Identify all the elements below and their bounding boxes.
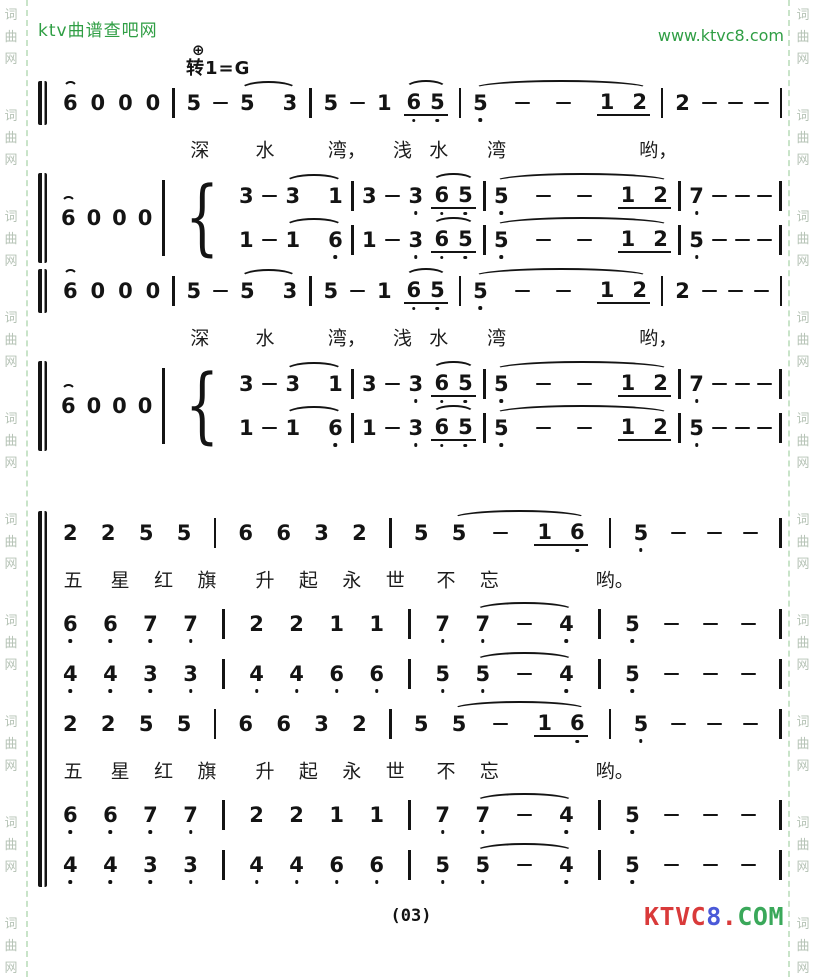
system-lead: 6000{ <box>60 368 228 444</box>
note: 0 <box>117 91 134 116</box>
dash-note <box>515 102 530 105</box>
dash-note <box>702 102 717 105</box>
note: 0 <box>90 91 107 116</box>
note: 5 <box>186 91 203 116</box>
dash-note <box>517 623 532 626</box>
note: 1 <box>327 184 344 209</box>
slur: 6 <box>62 91 79 116</box>
note: 5 <box>624 612 641 637</box>
lyric-char: 湾 <box>487 324 506 351</box>
lyric-char: 水 <box>255 324 274 351</box>
slur: 53 <box>239 91 298 116</box>
watermark-char: 网 <box>794 356 812 369</box>
note: 7 <box>182 803 199 828</box>
barline <box>678 369 681 399</box>
note: 5 <box>138 712 155 737</box>
note: 1 <box>620 417 637 438</box>
barline <box>309 88 312 118</box>
note: 6 <box>368 662 385 687</box>
note: 5 <box>451 521 468 546</box>
dash-note <box>262 239 277 242</box>
dash-note <box>385 239 400 242</box>
score-page: 词曲网词曲网词曲网词曲网词曲网词曲网词曲网词曲网词曲网词曲网 词曲网词曲网词曲网… <box>0 0 814 977</box>
note: 6 <box>275 521 292 546</box>
note: 6 <box>368 853 385 878</box>
barline <box>661 88 664 118</box>
watermark-spacer <box>794 277 812 303</box>
barline <box>779 800 782 830</box>
notation-line: 600055351655122 <box>60 276 784 306</box>
bracketed-group: 2255663255165五星红旗升起永世不忘哟。667722117745443… <box>38 508 784 890</box>
watermark-char: 网 <box>794 53 812 66</box>
lyrics-track: 五星红旗升起永世不忘哟。 <box>60 749 784 790</box>
note: 3 <box>407 228 424 253</box>
dash-note <box>741 814 756 817</box>
note: 6 <box>328 662 345 687</box>
barline <box>351 181 354 211</box>
note: 6 <box>60 206 77 231</box>
dash-note <box>707 532 722 535</box>
note: 3 <box>238 184 255 209</box>
note: 4 <box>558 662 575 687</box>
dash-note <box>671 723 686 726</box>
page-footer: (03) KTVC8.COM <box>38 898 784 940</box>
right-dashed-border <box>788 0 790 977</box>
barline <box>661 276 664 306</box>
watermark-char: 曲 <box>794 435 812 448</box>
note: 1 <box>238 416 255 441</box>
watermark-char: 网 <box>2 457 20 470</box>
lyric-char: 永 <box>342 565 361 592</box>
note: 5 <box>239 91 256 116</box>
lyric-char: 世 <box>386 756 405 783</box>
barline <box>408 659 411 689</box>
slur: 512 <box>493 183 671 209</box>
watermark-char: 曲 <box>2 536 20 549</box>
barline <box>309 276 312 306</box>
dash-note <box>735 383 750 386</box>
note: 7 <box>688 372 705 397</box>
note: 5 <box>457 185 474 206</box>
watermark-char: 网 <box>2 255 20 268</box>
watermark-spacer <box>2 277 20 303</box>
watermark-spacer <box>794 580 812 606</box>
note: 1 <box>368 803 385 828</box>
dash-note <box>757 195 772 198</box>
watermark-char: 网 <box>794 154 812 167</box>
note: 1 <box>376 279 393 304</box>
notation-line: 2255663255165 <box>60 709 784 739</box>
dash-note <box>556 102 571 105</box>
watermark-spacer <box>2 176 20 202</box>
watermark-char: 网 <box>2 760 20 773</box>
music-line: 443344665545 <box>60 840 784 890</box>
note: 2 <box>652 373 669 394</box>
watermark-char: 曲 <box>2 233 20 246</box>
note: 5 <box>633 712 650 737</box>
note: 6 <box>62 803 79 828</box>
watermark-char: 网 <box>2 659 20 672</box>
lyric-char: 不 <box>436 565 455 592</box>
note: 4 <box>62 853 79 878</box>
note: 4 <box>558 803 575 828</box>
barline <box>408 800 411 830</box>
lyric-char: 忘 <box>480 565 499 592</box>
note: 3 <box>284 372 301 397</box>
note: 3 <box>407 416 424 441</box>
slur: 31 <box>284 184 343 209</box>
watermark-char: 词 <box>2 9 20 22</box>
note: 5 <box>457 229 474 250</box>
watermark-char: 词 <box>794 716 812 729</box>
note: 6 <box>62 279 79 304</box>
note: 0 <box>137 206 154 231</box>
watermark-char: 词 <box>794 817 812 830</box>
lyric-char: 忘 <box>480 756 499 783</box>
watermark-spacer <box>794 479 812 505</box>
barline <box>172 276 175 306</box>
note-pair: 65 <box>431 227 475 253</box>
slur: 74 <box>474 803 574 828</box>
note: 3 <box>361 184 378 209</box>
lyrics-track: 深水湾，浅水湾哟， <box>60 128 784 170</box>
dash-note <box>536 383 551 386</box>
logo-segment: 8 <box>706 902 722 931</box>
watermark-char: 曲 <box>2 435 20 448</box>
slur: 16 <box>284 228 343 253</box>
watermark-char: 词 <box>794 9 812 22</box>
note: 1 <box>328 803 345 828</box>
barline <box>779 709 782 739</box>
dash-note <box>703 623 718 626</box>
watermark-char: 曲 <box>2 940 20 953</box>
dash-note <box>741 623 756 626</box>
barline <box>222 609 225 639</box>
barline <box>779 225 782 255</box>
note: 6 <box>406 280 423 301</box>
note: 1 <box>328 612 345 637</box>
note: 5 <box>413 521 430 546</box>
system-bracket <box>38 173 47 263</box>
watermark-char: 词 <box>794 312 812 325</box>
note: 4 <box>288 662 305 687</box>
note-pair: 16 <box>534 520 587 546</box>
watermark-char: 词 <box>2 514 20 527</box>
note: 6 <box>102 612 119 637</box>
lyric-char: 五 <box>64 565 83 592</box>
note: 3 <box>284 184 301 209</box>
note: 5 <box>457 417 474 438</box>
note: 1 <box>599 92 616 113</box>
watermark-char: 词 <box>794 413 812 426</box>
logo-segment: . <box>722 902 738 931</box>
left-watermark-column: 词曲网词曲网词曲网词曲网词曲网词曲网词曲网词曲网词曲网词曲网 <box>2 0 20 977</box>
lyric-char: 不 <box>436 756 455 783</box>
watermark-spacer <box>794 378 812 404</box>
note-pair: 12 <box>597 90 650 116</box>
lyric-char: 浅 <box>393 324 412 351</box>
dash-note <box>517 864 532 867</box>
dash-note <box>703 673 718 676</box>
note: 1 <box>376 91 393 116</box>
voice-brace: { <box>185 369 219 443</box>
note-pair: 16 <box>534 711 587 737</box>
watermark-char: 网 <box>794 457 812 470</box>
lyric-char: 哟， <box>639 324 677 351</box>
dash-note <box>664 673 679 676</box>
note: 5 <box>474 662 491 687</box>
note: 2 <box>62 712 79 737</box>
dash-note <box>493 532 508 535</box>
dash-note <box>712 383 727 386</box>
barline <box>483 225 486 255</box>
dash-note <box>517 814 532 817</box>
note: 2 <box>674 279 691 304</box>
note: 0 <box>86 206 103 231</box>
note: 5 <box>239 279 256 304</box>
note-pair: 65 <box>404 90 448 116</box>
system-gutter <box>38 78 60 128</box>
dual-voice-system: 6000{3313365512711613655125 <box>38 170 784 266</box>
slur: 516 <box>451 711 588 737</box>
note: 0 <box>111 394 128 419</box>
note: 7 <box>474 612 491 637</box>
group-column: 2255663255165五星红旗升起永世不忘哟。667722117745443… <box>60 508 784 890</box>
watermark-spacer <box>794 883 812 909</box>
dash-note <box>712 239 727 242</box>
upper-voice-line: 33133655127 <box>236 369 784 399</box>
slur: 512 <box>493 371 671 397</box>
watermark-spacer <box>794 782 812 808</box>
dash-note <box>262 427 277 430</box>
watermark-char: 词 <box>794 211 812 224</box>
slur: 65 <box>431 371 475 397</box>
watermark-char: 网 <box>794 255 812 268</box>
slur: 65 <box>431 227 475 253</box>
note: 2 <box>652 185 669 206</box>
slur: 54 <box>474 853 574 878</box>
watermark-char: 曲 <box>2 839 20 852</box>
watermark-char: 曲 <box>794 233 812 246</box>
note: 6 <box>237 521 254 546</box>
watermark-char: 曲 <box>2 738 20 751</box>
barline <box>779 369 782 399</box>
watermark-spacer <box>2 883 20 909</box>
lower-voice-line: 11613655125 <box>236 225 784 255</box>
slur: 54 <box>474 662 574 687</box>
watermark-char: 曲 <box>2 31 20 44</box>
dash-note <box>664 864 679 867</box>
watermark-char: 曲 <box>794 132 812 145</box>
barline <box>598 659 601 689</box>
slur: 65 <box>431 415 475 441</box>
dash-note <box>712 195 727 198</box>
watermark-char: 网 <box>794 760 812 773</box>
note: 1 <box>361 416 378 441</box>
note: 5 <box>624 853 641 878</box>
note: 5 <box>429 280 446 301</box>
note: 1 <box>536 522 553 543</box>
note: 1 <box>361 228 378 253</box>
barline <box>172 88 175 118</box>
watermark-char: 词 <box>2 211 20 224</box>
note: 2 <box>248 612 265 637</box>
barline <box>780 88 783 118</box>
note: 0 <box>145 279 162 304</box>
lyric-char: 哟， <box>639 136 677 163</box>
dash-note <box>536 239 551 242</box>
lyric-char: 哟。 <box>596 756 634 783</box>
notation-line: 667722117745 <box>60 800 784 830</box>
watermark-char: 网 <box>2 154 20 167</box>
lyric-char: 旗 <box>198 565 217 592</box>
dash-note <box>385 427 400 430</box>
lyric-char: 水 <box>255 136 274 163</box>
barline <box>678 225 681 255</box>
dash-note <box>213 290 228 293</box>
dash-note <box>493 723 508 726</box>
music-line: 667722117745 <box>60 790 784 840</box>
watermark-char: 曲 <box>794 839 812 852</box>
note: 1 <box>238 228 255 253</box>
dash-note <box>757 427 772 430</box>
slur: 16 <box>284 416 343 441</box>
dash-note <box>735 427 750 430</box>
watermark-char: 词 <box>2 615 20 628</box>
notation-line: 443344665545 <box>60 850 784 880</box>
note: 2 <box>288 803 305 828</box>
lyrics-track: 五星红旗升起永世不忘哟。 <box>60 558 784 599</box>
watermark-char: 词 <box>2 413 20 426</box>
lyric-char: 哟。 <box>596 565 634 592</box>
barline <box>678 413 681 443</box>
note: 1 <box>620 373 637 394</box>
dash-note <box>741 673 756 676</box>
note: 5 <box>434 662 451 687</box>
lyric-char: 永 <box>342 756 361 783</box>
watermark-char: 词 <box>2 110 20 123</box>
system-bracket <box>38 511 47 887</box>
note: 2 <box>652 229 669 250</box>
note: 1 <box>620 229 637 250</box>
note: 2 <box>62 521 79 546</box>
note: 5 <box>176 712 193 737</box>
lyrics-track: 深水湾，浅水湾哟， <box>60 316 784 358</box>
barline <box>351 369 354 399</box>
note: 4 <box>558 853 575 878</box>
watermark-spacer <box>2 580 20 606</box>
barline <box>222 800 225 830</box>
dash-note <box>754 290 769 293</box>
watermark-char: 曲 <box>794 940 812 953</box>
dash-note <box>515 290 530 293</box>
watermark-char: 曲 <box>794 637 812 650</box>
note: 5 <box>474 853 491 878</box>
lyric-char: 水 <box>429 324 448 351</box>
site-name-link[interactable]: ktv曲谱查吧网 <box>38 21 158 41</box>
coda-icon: ⊕ <box>192 43 784 58</box>
barline <box>779 850 782 880</box>
slur: 512 <box>493 415 671 441</box>
note: 5 <box>688 416 705 441</box>
slur: 516 <box>451 520 588 546</box>
note: 1 <box>536 713 553 734</box>
barline <box>483 413 486 443</box>
music-line: 600055351655122 <box>38 78 784 128</box>
lyric-char: 星 <box>111 756 130 783</box>
note: 1 <box>327 372 344 397</box>
barline <box>598 800 601 830</box>
note: 6 <box>237 712 254 737</box>
barline <box>214 518 217 548</box>
site-url-link[interactable]: www.ktvc8.com <box>658 26 784 45</box>
dash-note <box>577 195 592 198</box>
barline <box>389 709 392 739</box>
dash-note <box>664 623 679 626</box>
dash-note <box>664 814 679 817</box>
note: 2 <box>631 92 648 113</box>
lyric-char: 红 <box>154 565 173 592</box>
barline <box>351 225 354 255</box>
watermark-char: 网 <box>2 53 20 66</box>
note: 3 <box>142 853 159 878</box>
lyric-char: 湾， <box>328 324 366 351</box>
watermark-char: 网 <box>794 962 812 975</box>
barline <box>162 180 165 256</box>
barline <box>408 850 411 880</box>
note: 5 <box>413 712 430 737</box>
note: 6 <box>328 853 345 878</box>
music-line: 600055351655122 <box>38 266 784 316</box>
right-watermark-column: 词曲网词曲网词曲网词曲网词曲网词曲网词曲网词曲网词曲网词曲网 <box>794 0 812 977</box>
barline <box>609 518 612 548</box>
lyrics-line: 五星红旗升起永世不忘哟。 <box>60 749 784 790</box>
dash-note <box>743 723 758 726</box>
ktvc8-logo[interactable]: KTVC8.COM <box>644 902 784 931</box>
note: 6 <box>433 373 450 394</box>
note: 5 <box>633 521 650 546</box>
lyric-char: 浅 <box>393 136 412 163</box>
note: 6 <box>433 229 450 250</box>
note: 1 <box>599 280 616 301</box>
note: 2 <box>288 612 305 637</box>
watermark-char: 词 <box>794 110 812 123</box>
note: 7 <box>142 803 159 828</box>
watermark-spacer <box>2 681 20 707</box>
dash-note <box>703 814 718 817</box>
note: 2 <box>652 417 669 438</box>
note: 1 <box>368 612 385 637</box>
watermark-spacer <box>794 681 812 707</box>
lyric-char: 深 <box>190 136 209 163</box>
note: 2 <box>248 803 265 828</box>
note: 7 <box>688 184 705 209</box>
barline <box>483 369 486 399</box>
lyric-char: 水 <box>429 136 448 163</box>
note: 7 <box>434 803 451 828</box>
note: 6 <box>433 185 450 206</box>
barline <box>483 181 486 211</box>
note-pair: 12 <box>618 415 671 441</box>
music-line: 2255663255165 <box>60 508 784 558</box>
lyrics-line: 五星红旗升起永世不忘哟。 <box>60 558 784 599</box>
dash-note <box>536 427 551 430</box>
note: 0 <box>117 279 134 304</box>
note: 0 <box>145 91 162 116</box>
note: 6 <box>327 228 344 253</box>
note: 2 <box>674 91 691 116</box>
system-gutter <box>38 170 60 266</box>
